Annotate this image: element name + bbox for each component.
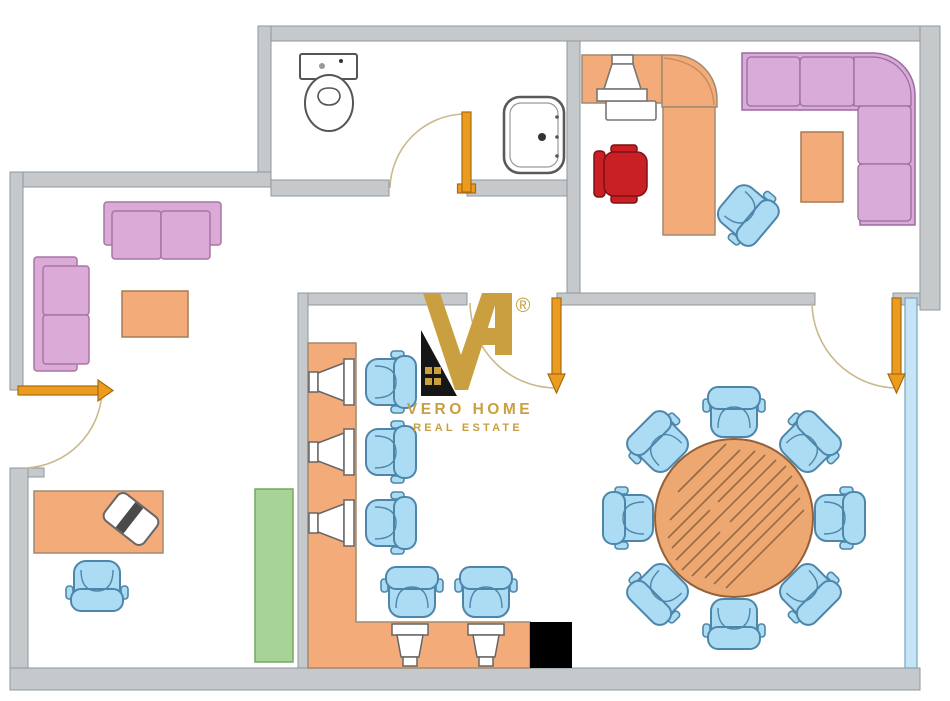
floor-plan-canvas: ® VERO HOME REAL ESTATE (0, 0, 950, 701)
sectional-cushion-5 (858, 164, 911, 221)
red-executive-chair (594, 145, 647, 203)
brand-tagline: REAL ESTATE (413, 422, 523, 434)
task-chair-4 (381, 567, 443, 617)
wall-bathroom-bottom-left (271, 180, 389, 196)
entrance-door-leaf (18, 386, 98, 395)
wall-left-lower (10, 468, 28, 690)
toilet-tank-dot (339, 59, 343, 63)
bathroom-door-arc (390, 114, 463, 188)
reception-chair (66, 561, 128, 611)
office-door-arrow (888, 374, 905, 393)
reception-office (34, 489, 293, 662)
sofa-vertical-cushion-bottom (43, 315, 89, 364)
bathroom-door-leaf (462, 112, 471, 192)
window-glazing-right (905, 298, 917, 668)
office-side-table (801, 132, 843, 202)
brand-name: VERO HOME (407, 401, 533, 418)
entrance-door-arc (26, 392, 102, 468)
green-cabinet (255, 489, 293, 662)
private-office (582, 53, 915, 254)
floor-plan-svg: ® VERO HOME REAL ESTATE (0, 0, 950, 701)
sectional-cushion-1 (747, 57, 800, 106)
lounge (34, 202, 221, 371)
wall-bottom (10, 668, 920, 690)
bathroom (300, 54, 564, 173)
meeting-area (603, 387, 865, 649)
wash-basin (504, 97, 564, 173)
basin-drain (538, 133, 546, 141)
faucet-dot-3 (555, 154, 559, 158)
wall-left-stub (28, 468, 44, 477)
task-chair-5 (455, 567, 517, 617)
office-guest-chair (708, 174, 786, 254)
sofa-vertical-cushion-top (43, 266, 89, 315)
wall-bathroom-left (258, 26, 271, 187)
corridor-door-leaf (552, 298, 561, 378)
brand-logo: ® VERO HOME REAL ESTATE (407, 293, 533, 434)
wall-lounge-top (10, 172, 271, 187)
corridor-door-arrow (548, 374, 565, 393)
office-keyboard-tray (606, 101, 656, 120)
sectional-cushion-2 (800, 57, 854, 106)
sofa-horizontal-cushion-right (161, 211, 210, 259)
wall-bathroom-bottom-right (467, 180, 580, 196)
office-door-arc (812, 303, 896, 388)
toilet-bowl-opening (318, 88, 340, 105)
lounge-coffee-table (122, 291, 188, 337)
wall-top (258, 26, 940, 41)
sofa-horizontal-cushion-left (112, 211, 161, 259)
task-chair-3 (366, 492, 416, 554)
black-pillar (530, 622, 572, 668)
faucet-dot-1 (555, 115, 559, 119)
sectional-cushion-4 (858, 106, 911, 164)
wall-office-left (567, 41, 580, 305)
office-desk-corner (662, 55, 717, 107)
office-door-leaf (892, 298, 901, 378)
meeting-chair-n (703, 387, 765, 437)
meeting-chair-w (603, 487, 653, 549)
toilet-flush-button (319, 63, 325, 69)
meeting-chair-s (703, 599, 765, 649)
wall-left-upper (10, 172, 23, 390)
logo-h-stem (495, 293, 512, 355)
faucet-dot-2 (555, 135, 559, 139)
entrance-door-arrow (98, 380, 113, 401)
office-monitor-cap (612, 55, 633, 64)
wall-right-upper (920, 26, 940, 310)
wall-workstation-left (298, 293, 308, 668)
wall-office-bottom (557, 293, 815, 305)
office-monitor-screen (597, 89, 647, 101)
red-chair-seat (604, 152, 647, 196)
meeting-chair-e (815, 487, 865, 549)
office-desk-vertical (663, 107, 715, 235)
registered-trademark: ® (516, 295, 531, 317)
task-chair-2 (366, 421, 416, 483)
